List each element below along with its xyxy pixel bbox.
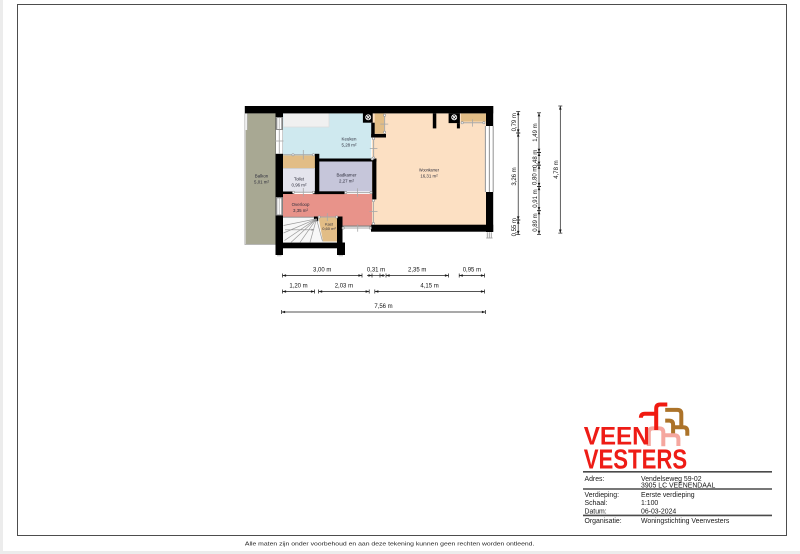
svg-text:Verdieping:: Verdieping: xyxy=(585,492,620,499)
svg-text:0,89 m: 0,89 m xyxy=(533,213,539,231)
svg-text:2,35 m: 2,35 m xyxy=(408,267,426,273)
svg-text:0,91 m: 0,91 m xyxy=(533,189,539,207)
svg-text:7,56 m: 7,56 m xyxy=(374,304,392,310)
svg-text:1,20 m: 1,20 m xyxy=(289,283,307,289)
svg-text:Schaal:: Schaal: xyxy=(585,500,608,507)
svg-text:0,55 m: 0,55 m xyxy=(512,218,518,236)
svg-text:3905 LC VEENENDAAL: 3905 LC VEENENDAAL xyxy=(641,482,715,489)
svg-text:5,28 m²: 5,28 m² xyxy=(342,142,357,147)
svg-text:0,31 m: 0,31 m xyxy=(367,267,385,273)
svg-text:Eerste verdieping: Eerste verdieping xyxy=(641,492,695,499)
svg-text:4,15 m: 4,15 m xyxy=(420,283,438,289)
svg-text:0,96 m²: 0,96 m² xyxy=(292,182,307,187)
svg-text:0,60 m²: 0,60 m² xyxy=(322,226,336,231)
svg-text:Keuken: Keuken xyxy=(342,137,357,142)
svg-text:Datum:: Datum: xyxy=(585,508,607,515)
svg-text:5,01 m²: 5,01 m² xyxy=(254,179,269,184)
svg-text:2,03 m: 2,03 m xyxy=(335,283,353,289)
svg-text:3,00 m: 3,00 m xyxy=(313,267,331,273)
svg-text:Toilet: Toilet xyxy=(294,177,305,182)
svg-text:06-03-2024: 06-03-2024 xyxy=(641,508,676,515)
svg-text:VESTERS: VESTERS xyxy=(584,444,688,475)
svg-text:0,80 m: 0,80 m xyxy=(533,167,539,185)
svg-text:Woonkamer: Woonkamer xyxy=(419,168,439,173)
svg-text:0,79 m: 0,79 m xyxy=(512,113,518,131)
svg-text:Badkamer: Badkamer xyxy=(336,173,357,178)
svg-text:4,78 m: 4,78 m xyxy=(554,160,560,178)
svg-text:Adres:: Adres: xyxy=(585,476,605,483)
svg-text:Balkon: Balkon xyxy=(255,174,269,179)
svg-text:Organisatie:: Organisatie: xyxy=(585,518,622,525)
svg-text:Woningstichting Veenvesters: Woningstichting Veenvesters xyxy=(641,518,730,525)
svg-text:0,95 m: 0,95 m xyxy=(463,267,481,273)
svg-text:2,27 m²: 2,27 m² xyxy=(339,178,354,183)
svg-text:Alle maten zijn onder voorbeho: Alle maten zijn onder voorbehoud en aan … xyxy=(245,541,535,547)
svg-text:1:100: 1:100 xyxy=(641,500,658,507)
svg-text:1,49 m: 1,49 m xyxy=(533,123,539,141)
svg-text:3,35 m²: 3,35 m² xyxy=(293,208,308,213)
svg-text:Overloop: Overloop xyxy=(292,202,310,207)
svg-text:3,26 m: 3,26 m xyxy=(512,167,518,185)
svg-text:16,31 m²: 16,31 m² xyxy=(420,173,438,178)
